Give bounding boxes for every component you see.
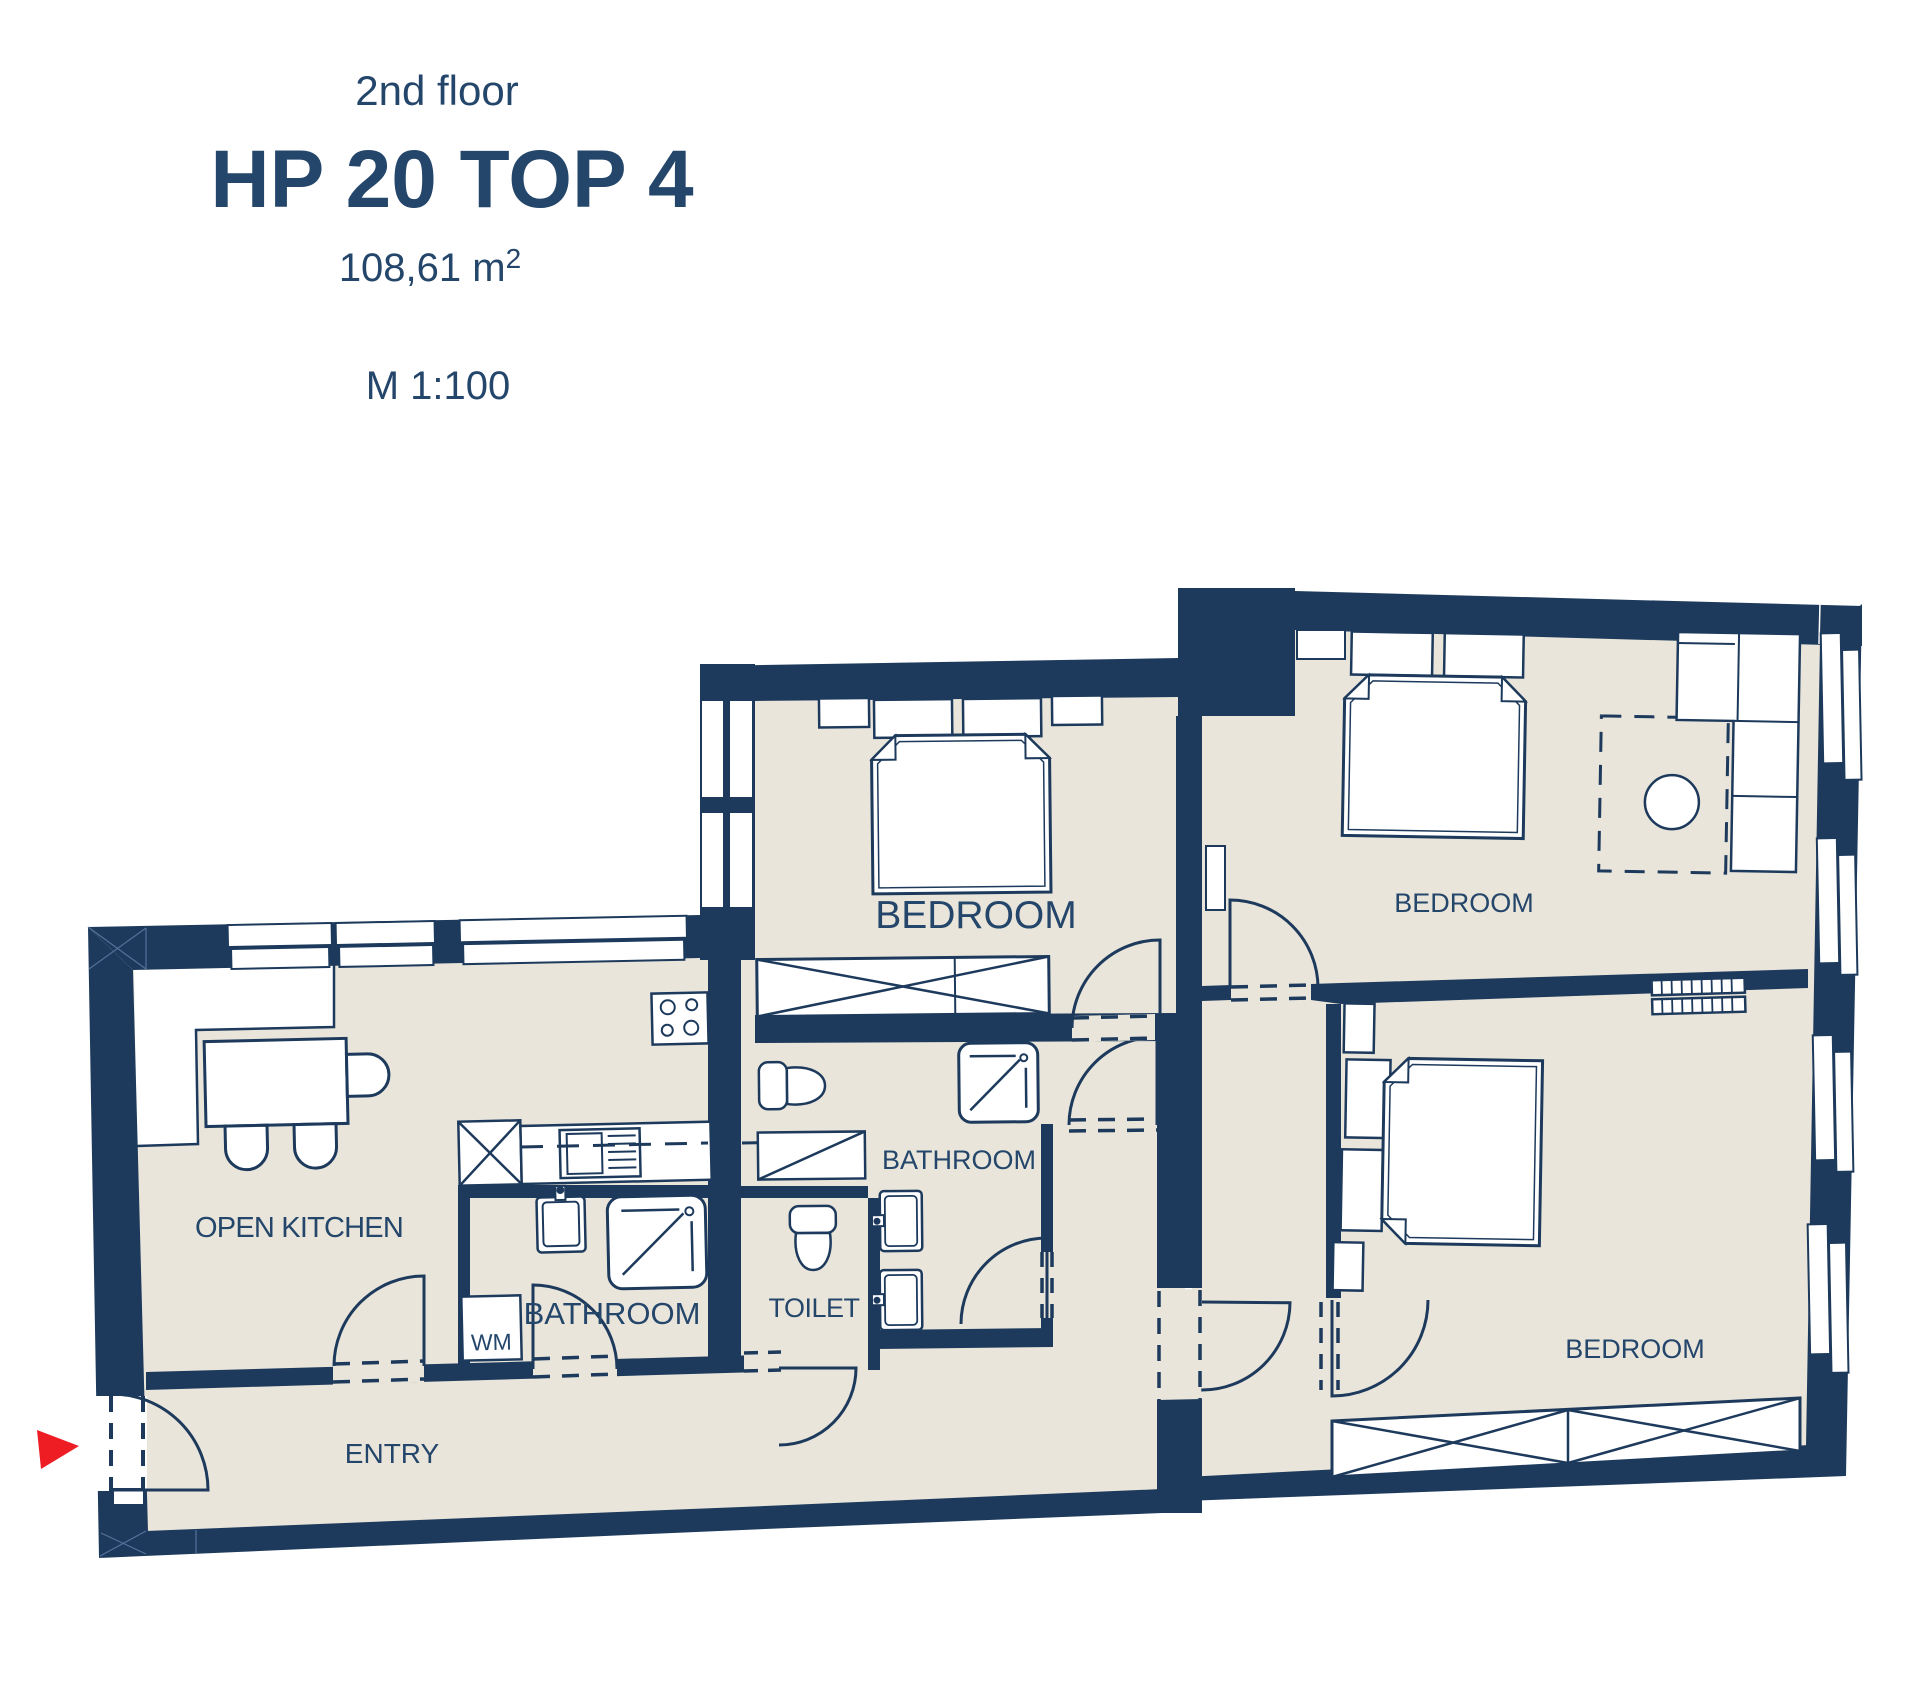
svg-text:WM: WM: [471, 1329, 512, 1356]
svg-text:BATHROOM: BATHROOM: [882, 1145, 1036, 1175]
svg-text:BEDROOM: BEDROOM: [1394, 888, 1534, 918]
svg-text:ENTRY: ENTRY: [345, 1438, 440, 1469]
svg-text:BEDROOM: BEDROOM: [875, 894, 1077, 937]
svg-text:M 1:100: M 1:100: [366, 364, 511, 408]
svg-text:108,61 m2: 108,61 m2: [339, 243, 521, 290]
svg-text:BEDROOM: BEDROOM: [1565, 1334, 1705, 1364]
svg-text:HP 20 TOP 4: HP 20 TOP 4: [210, 134, 694, 225]
svg-text:BATHROOM: BATHROOM: [524, 1296, 701, 1331]
svg-text:TOILET: TOILET: [768, 1293, 859, 1323]
svg-text:OPEN KITCHEN: OPEN KITCHEN: [195, 1212, 403, 1244]
svg-text:2nd floor: 2nd floor: [355, 67, 518, 114]
